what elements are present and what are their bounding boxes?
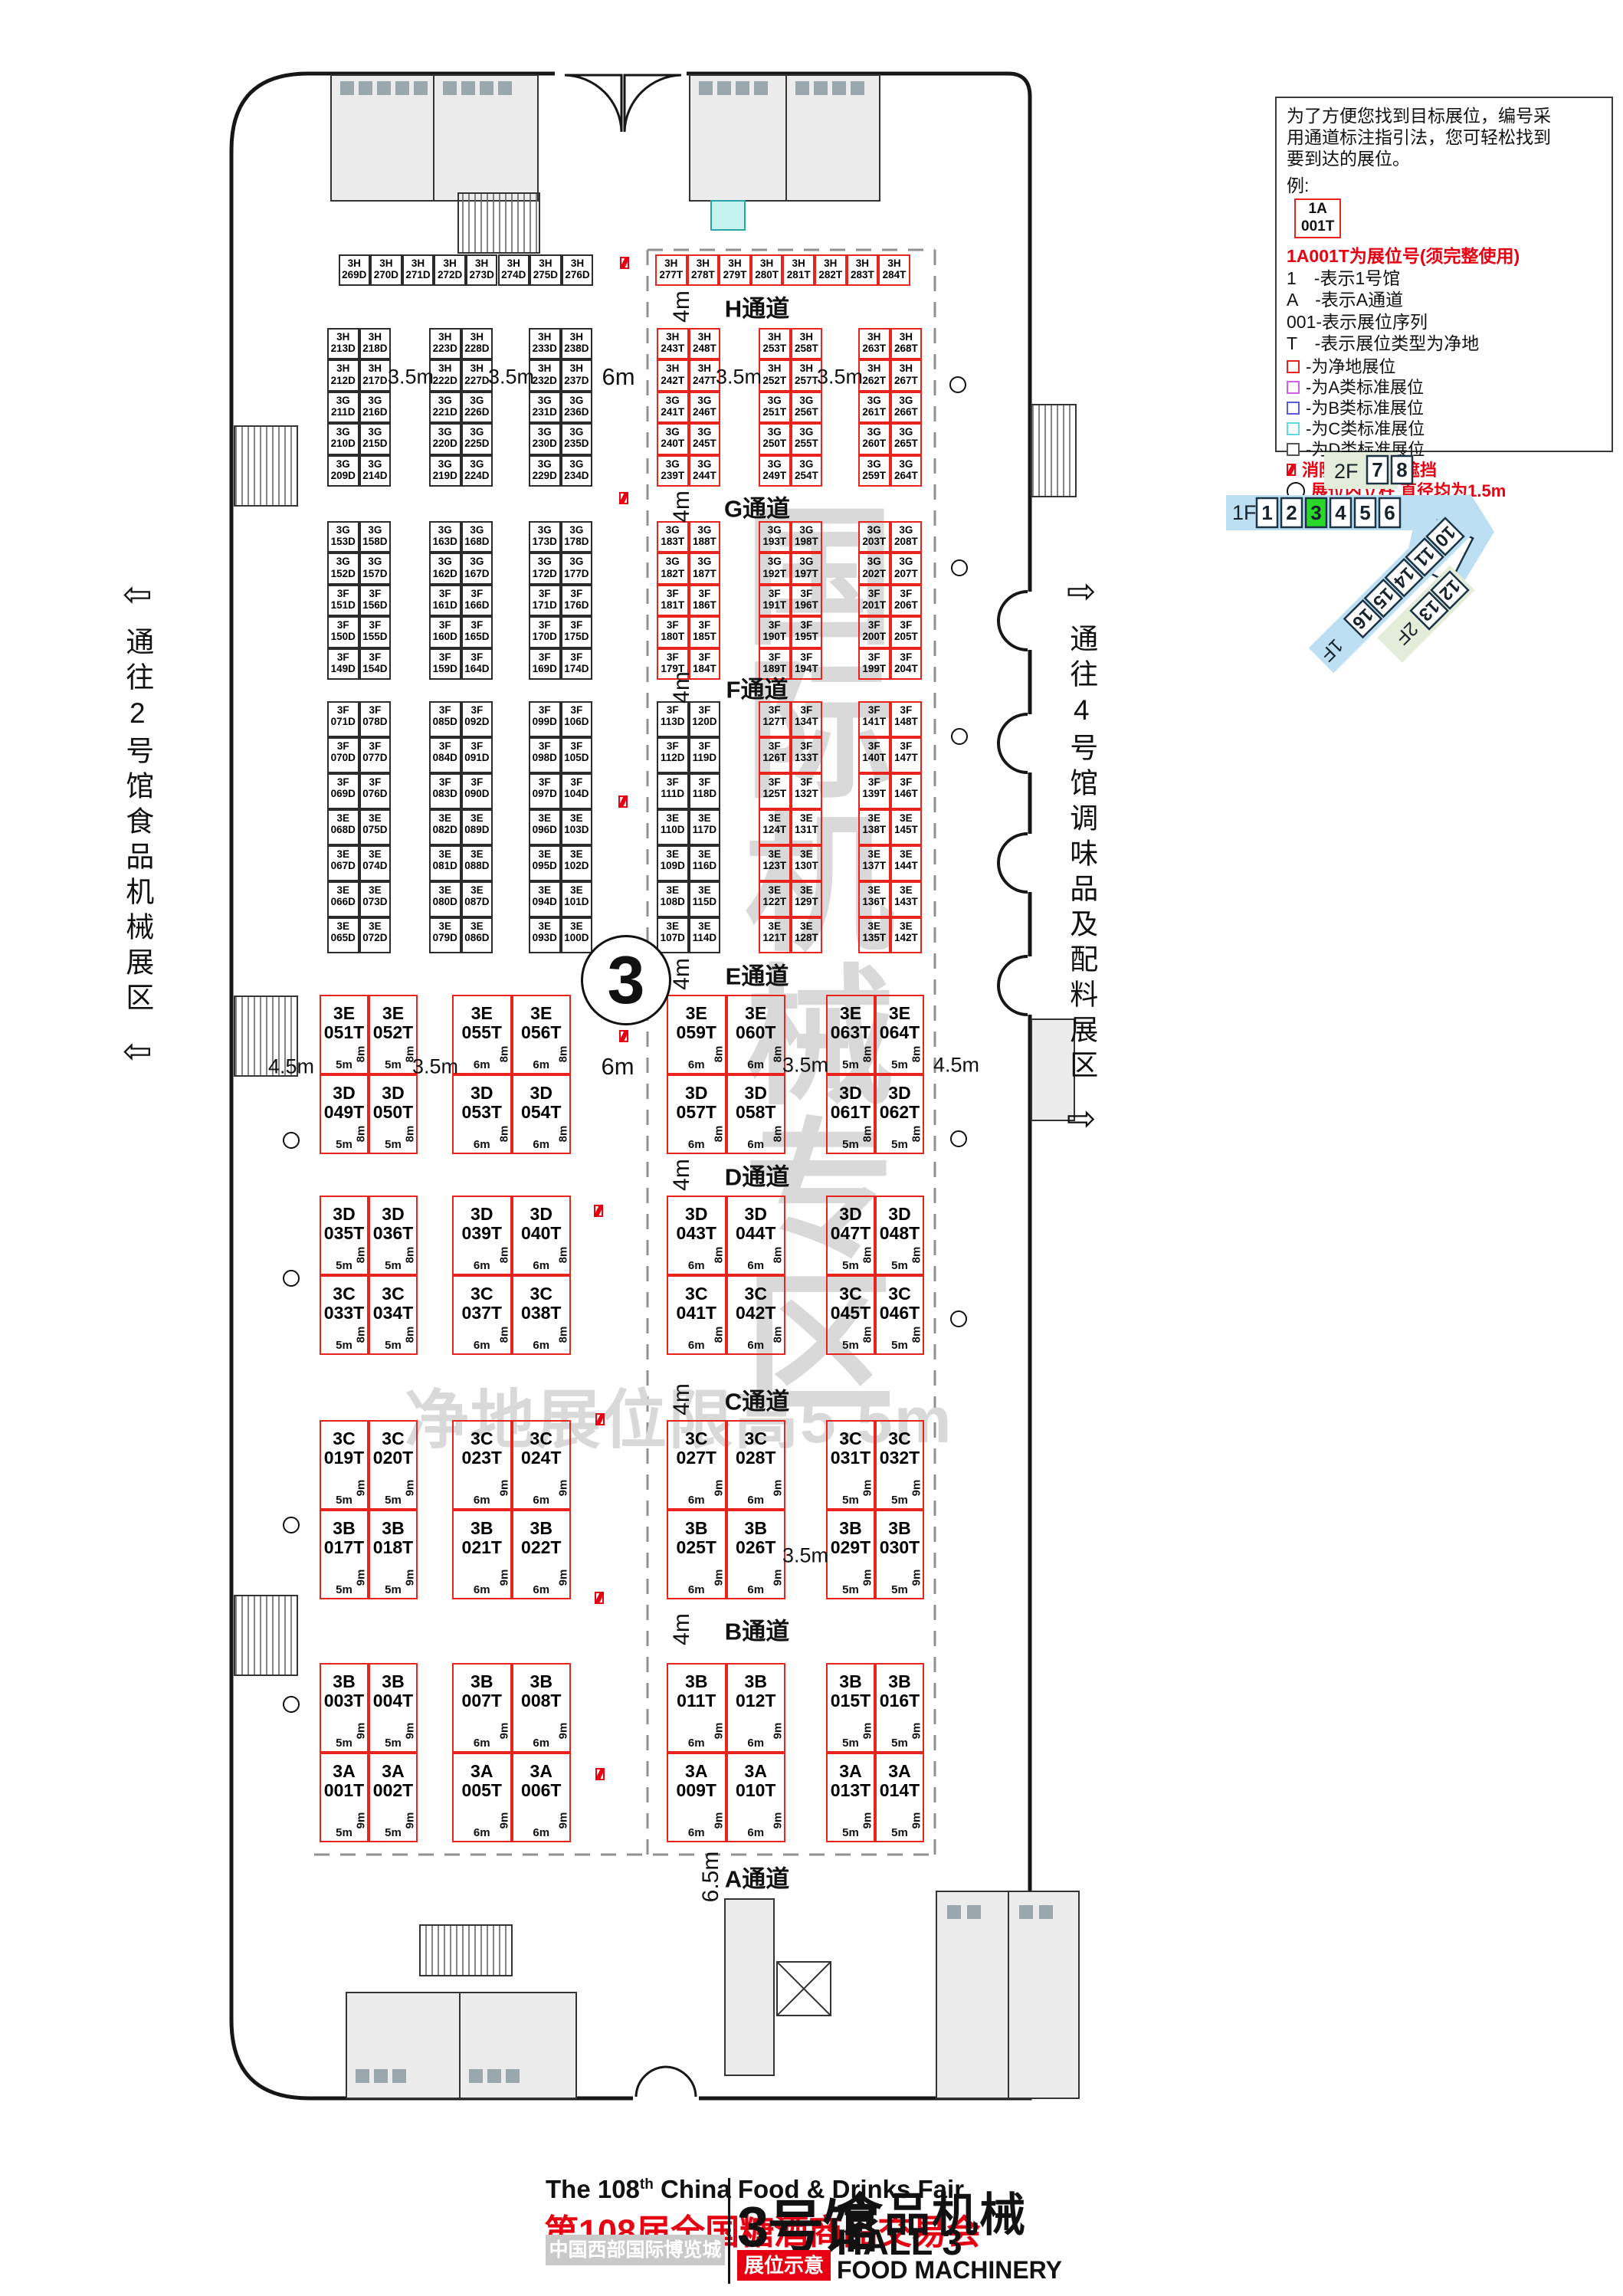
booth-3E088D[interactable]: 3E088D xyxy=(461,845,493,881)
booth-3B008T[interactable]: 3B008T6m9m xyxy=(512,1663,572,1753)
booth-3G203T[interactable]: 3G203T xyxy=(858,521,890,553)
booth-3E144T[interactable]: 3E144T xyxy=(890,845,923,881)
booth-3G250T[interactable]: 3G250T xyxy=(759,423,791,454)
booth-3G152D[interactable]: 3G152D xyxy=(327,553,359,584)
booth-3E131T[interactable]: 3E131T xyxy=(791,809,823,845)
booth-3D049T[interactable]: 3D049T5m8m xyxy=(320,1074,369,1154)
booth-3F160D[interactable]: 3F160D xyxy=(429,616,461,648)
booth-3G225D[interactable]: 3G225D xyxy=(461,423,493,454)
booth-3F141T[interactable]: 3F141T xyxy=(858,701,890,737)
booth-3H279T[interactable]: 3H279T xyxy=(719,254,751,286)
booth-3B007T[interactable]: 3B007T6m9m xyxy=(452,1663,512,1753)
booth-3F199T[interactable]: 3F199T xyxy=(858,648,890,680)
booth-3E080D[interactable]: 3E080D xyxy=(429,881,461,917)
booth-3A010T[interactable]: 3A010T6m9m xyxy=(726,1753,786,1842)
booth-3E056T[interactable]: 3E056T6m8m xyxy=(512,995,572,1074)
booth-3H277T[interactable]: 3H277T xyxy=(655,254,687,286)
booth-3F159D[interactable]: 3F159D xyxy=(429,648,461,680)
booth-3F140T[interactable]: 3F140T xyxy=(858,737,890,773)
booth-3F195T[interactable]: 3F195T xyxy=(791,616,823,648)
booth-3B026T[interactable]: 3B026T6m9m xyxy=(726,1510,786,1599)
booth-3B012T[interactable]: 3B012T6m9m xyxy=(726,1663,786,1753)
booth-3F194T[interactable]: 3F194T xyxy=(791,648,823,680)
booth-3G229D[interactable]: 3G229D xyxy=(529,455,561,487)
booth-3H271D[interactable]: 3H271D xyxy=(402,254,434,286)
booth-3C032T[interactable]: 3C032T5m9m xyxy=(875,1420,924,1510)
booth-3E138T[interactable]: 3E138T xyxy=(858,809,890,845)
booth-3F092D[interactable]: 3F092D xyxy=(461,701,493,737)
booth-3H248T[interactable]: 3H248T xyxy=(689,328,721,359)
booth-3B030T[interactable]: 3B030T5m9m xyxy=(875,1510,924,1599)
booth-3E137T[interactable]: 3E137T xyxy=(858,845,890,881)
booth-3F175D[interactable]: 3F175D xyxy=(561,616,593,648)
booth-3F150D[interactable]: 3F150D xyxy=(327,616,359,648)
booth-3E122T[interactable]: 3E122T xyxy=(759,881,791,917)
booth-3H273D[interactable]: 3H273D xyxy=(466,254,498,286)
booth-3C038T[interactable]: 3C038T6m8m xyxy=(512,1275,572,1355)
booth-3G234D[interactable]: 3G234D xyxy=(561,455,593,487)
booth-3G182T[interactable]: 3G182T xyxy=(657,553,689,584)
fire-well-icon xyxy=(594,1205,603,1217)
dimension-label: 4.5m xyxy=(268,1055,314,1079)
booth-3F105D[interactable]: 3F105D xyxy=(561,737,593,773)
booth-3H243T[interactable]: 3H243T xyxy=(657,328,689,359)
booth-3F191T[interactable]: 3F191T xyxy=(759,585,791,616)
booth-3E074D[interactable]: 3E074D xyxy=(359,845,392,881)
booth-3F176D[interactable]: 3F176D xyxy=(561,585,593,616)
booth-3E096D[interactable]: 3E096D xyxy=(529,809,561,845)
booth-3C041T[interactable]: 3C041T6m8m xyxy=(667,1275,726,1355)
booth-3F156D[interactable]: 3F156D xyxy=(359,585,392,616)
booth-3H222D[interactable]: 3H222D xyxy=(429,359,461,391)
booth-3C037T[interactable]: 3C037T6m8m xyxy=(452,1275,512,1355)
booth-3H282T[interactable]: 3H282T xyxy=(815,254,847,286)
booth-3E129T[interactable]: 3E129T xyxy=(791,881,823,917)
venue-name: 中国西部国际博览城 xyxy=(546,2235,725,2265)
booth-3E064T[interactable]: 3E064T5m8m xyxy=(875,995,924,1074)
booth-3A006T[interactable]: 3A006T6m9m xyxy=(512,1753,572,1842)
booth-3D054T[interactable]: 3D054T6m8m xyxy=(512,1074,572,1154)
booth-3F190T[interactable]: 3F190T xyxy=(759,616,791,648)
booth-3H262T[interactable]: 3H262T xyxy=(858,359,890,391)
booth-3G153D[interactable]: 3G153D xyxy=(327,521,359,553)
booth-3G251T[interactable]: 3G251T xyxy=(759,392,791,423)
booth-3F118D[interactable]: 3F118D xyxy=(689,773,721,809)
minimap-hall-5[interactable]: 5 xyxy=(1359,501,1370,524)
booth-3B022T[interactable]: 3B022T6m9m xyxy=(512,1510,572,1599)
fire-well-icon xyxy=(620,257,629,269)
booth-3F164D[interactable]: 3F164D xyxy=(461,648,493,680)
booth-3B011T[interactable]: 3B011T6m9m xyxy=(667,1663,726,1753)
booth-3G255T[interactable]: 3G255T xyxy=(791,423,823,454)
booth-3G207T[interactable]: 3G207T xyxy=(890,553,923,584)
pillar-icon xyxy=(950,1130,967,1147)
booth-3A002T[interactable]: 3A002T5m9m xyxy=(369,1753,418,1842)
floor-plan-canvas: 国际机械专区 净地展位限高5.5m 3 ⇦ 通往2号馆食品机械展区 ⇦ ⇨ 通往… xyxy=(0,0,1623,2296)
booth-3G193T[interactable]: 3G193T xyxy=(759,521,791,553)
booth-3H253T[interactable]: 3H253T xyxy=(759,328,791,359)
booth-3C027T[interactable]: 3C027T6m9m xyxy=(667,1420,726,1510)
booth-3G260T[interactable]: 3G260T xyxy=(858,423,890,454)
booth-3C046T[interactable]: 3C046T5m8m xyxy=(875,1275,924,1355)
booth-3G178D[interactable]: 3G178D xyxy=(561,521,593,553)
booth-3F126T[interactable]: 3F126T xyxy=(759,737,791,773)
booth-3E094D[interactable]: 3E094D xyxy=(529,881,561,917)
booth-3E059T[interactable]: 3E059T6m8m xyxy=(667,995,726,1074)
booth-3E095D[interactable]: 3E095D xyxy=(529,845,561,881)
booth-3G209D[interactable]: 3G209D xyxy=(327,455,359,487)
booth-3B015T[interactable]: 3B015T5m9m xyxy=(826,1663,875,1753)
booth-3G162D[interactable]: 3G162D xyxy=(429,553,461,584)
booth-3G215D[interactable]: 3G215D xyxy=(359,423,392,454)
booth-3F200T[interactable]: 3F200T xyxy=(858,616,890,648)
booth-3E117D[interactable]: 3E117D xyxy=(689,809,721,845)
booth-3G211D[interactable]: 3G211D xyxy=(327,392,359,423)
booth-3G157D[interactable]: 3G157D xyxy=(359,553,392,584)
booth-3E128T[interactable]: 3E128T xyxy=(791,917,823,953)
booth-3A013T[interactable]: 3A013T5m9m xyxy=(826,1753,875,1842)
booth-3G158D[interactable]: 3G158D xyxy=(359,521,392,553)
booth-3G249T[interactable]: 3G249T xyxy=(759,455,791,487)
booth-3C034T[interactable]: 3C034T5m8m xyxy=(369,1275,418,1355)
booth-3E121T[interactable]: 3E121T xyxy=(759,917,791,953)
booth-3D036T[interactable]: 3D036T5m8m xyxy=(369,1196,418,1275)
booth-3C031T[interactable]: 3C031T5m9m xyxy=(826,1420,875,1510)
minimap-hall-6[interactable]: 6 xyxy=(1384,501,1395,524)
booth-3G187T[interactable]: 3G187T xyxy=(689,553,721,584)
booth-3E066D[interactable]: 3E066D xyxy=(327,881,359,917)
booth-3F204T[interactable]: 3F204T xyxy=(890,648,923,680)
left-arrow-icon: ⇦ xyxy=(123,576,152,612)
booth-3D058T[interactable]: 3D058T6m8m xyxy=(726,1074,786,1154)
booth-3B016T[interactable]: 3B016T5m9m xyxy=(875,1663,924,1753)
booth-3E072D[interactable]: 3E072D xyxy=(359,917,392,953)
booth-3E079D[interactable]: 3E079D xyxy=(429,917,461,953)
booth-3H238D[interactable]: 3H238D xyxy=(561,328,593,359)
booth-3D035T[interactable]: 3D035T5m8m xyxy=(320,1196,369,1275)
booth-3H283T[interactable]: 3H283T xyxy=(847,254,879,286)
pillar-icon xyxy=(951,728,968,745)
booth-3F171D[interactable]: 3F171D xyxy=(529,585,561,616)
booth-3G244T[interactable]: 3G244T xyxy=(689,455,721,487)
booth-3B029T[interactable]: 3B029T5m9m xyxy=(826,1510,875,1599)
booth-3F139T[interactable]: 3F139T xyxy=(858,773,890,809)
booth-3D040T[interactable]: 3D040T6m8m xyxy=(512,1196,572,1275)
booth-3E116D[interactable]: 3E116D xyxy=(689,845,721,881)
booth-3G224D[interactable]: 3G224D xyxy=(461,455,493,487)
booth-3H213D[interactable]: 3H213D xyxy=(327,328,359,359)
booth-3F147T[interactable]: 3F147T xyxy=(890,737,923,773)
booth-3H276D[interactable]: 3H276D xyxy=(562,254,594,286)
booth-3B004T[interactable]: 3B004T5m9m xyxy=(369,1663,418,1753)
booth-3G254T[interactable]: 3G254T xyxy=(791,455,823,487)
booth-3B025T[interactable]: 3B025T6m9m xyxy=(667,1510,726,1599)
venue-minimap: 2F781F123456910111415161F12132F xyxy=(1225,429,1623,755)
booth-3F104D[interactable]: 3F104D xyxy=(561,773,593,809)
booth-3E087D[interactable]: 3E087D xyxy=(461,881,493,917)
booth-3H269D[interactable]: 3H269D xyxy=(339,254,371,286)
booth-3F148T[interactable]: 3F148T xyxy=(890,701,923,737)
booth-3F132T[interactable]: 3F132T xyxy=(791,773,823,809)
booth-3E063T[interactable]: 3E063T5m8m xyxy=(826,995,875,1074)
booth-3E086D[interactable]: 3E086D xyxy=(461,917,493,953)
booth-3C023T[interactable]: 3C023T6m9m xyxy=(452,1420,512,1510)
fire-well-icon xyxy=(595,1413,605,1425)
booth-3E101D[interactable]: 3E101D xyxy=(561,881,593,917)
booth-3G173D[interactable]: 3G173D xyxy=(529,521,561,553)
booth-3G256T[interactable]: 3G256T xyxy=(791,392,823,423)
booth-3F155D[interactable]: 3F155D xyxy=(359,616,392,648)
booth-3H242T[interactable]: 3H242T xyxy=(657,359,689,391)
booth-3F112D[interactable]: 3F112D xyxy=(657,737,689,773)
pillar-icon xyxy=(283,1696,300,1713)
booth-3F069D[interactable]: 3F069D xyxy=(327,773,359,809)
booth-3E060T[interactable]: 3E060T6m8m xyxy=(726,995,786,1074)
booth-3G197T[interactable]: 3G197T xyxy=(791,553,823,584)
booth-3D062T[interactable]: 3D062T5m8m xyxy=(875,1074,924,1154)
booth-3D039T[interactable]: 3D039T6m8m xyxy=(452,1196,512,1275)
booth-3F125T[interactable]: 3F125T xyxy=(759,773,791,809)
booth-3F106D[interactable]: 3F106D xyxy=(561,701,593,737)
booth-3G210D[interactable]: 3G210D xyxy=(327,423,359,454)
booth-3E068D[interactable]: 3E068D xyxy=(327,809,359,845)
booth-3E067D[interactable]: 3E067D xyxy=(327,845,359,881)
booth-3B018T[interactable]: 3B018T5m9m xyxy=(369,1510,418,1599)
minimap-hall-1[interactable]: 1 xyxy=(1261,501,1272,524)
booth-3G239T[interactable]: 3G239T xyxy=(657,455,689,487)
minimap-hall-8[interactable]: 8 xyxy=(1396,458,1407,481)
booth-3E055T[interactable]: 3E055T6m8m xyxy=(452,995,512,1074)
booth-3F078D[interactable]: 3F078D xyxy=(359,701,392,737)
booth-3H217D[interactable]: 3H217D xyxy=(359,359,392,391)
booth-3E135T[interactable]: 3E135T xyxy=(858,917,890,953)
booth-3E124T[interactable]: 3E124T xyxy=(759,809,791,845)
booth-3G214D[interactable]: 3G214D xyxy=(359,455,392,487)
booth-3G208T[interactable]: 3G208T xyxy=(890,521,923,553)
booth-3F076D[interactable]: 3F076D xyxy=(359,773,392,809)
booth-3F161D[interactable]: 3F161D xyxy=(429,585,461,616)
booth-3F174D[interactable]: 3F174D xyxy=(561,648,593,680)
booth-3G241T[interactable]: 3G241T xyxy=(657,392,689,423)
booth-3H258T[interactable]: 3H258T xyxy=(791,328,823,359)
booth-3D044T[interactable]: 3D044T6m8m xyxy=(726,1196,786,1275)
booth-3F169D[interactable]: 3F169D xyxy=(529,648,561,680)
booth-3F119D[interactable]: 3F119D xyxy=(689,737,721,773)
booth-3G167D[interactable]: 3G167D xyxy=(461,553,493,584)
booth-3G264T[interactable]: 3G264T xyxy=(890,455,923,487)
booth-3G231D[interactable]: 3G231D xyxy=(529,392,561,423)
booth-3C045T[interactable]: 3C045T5m8m xyxy=(826,1275,875,1355)
pillar-icon xyxy=(949,376,966,393)
booth-3A001T[interactable]: 3A001T5m9m xyxy=(320,1753,369,1842)
dimension-label: 3.5m xyxy=(782,1544,828,1568)
booth-3E051T[interactable]: 3E051T5m8m xyxy=(320,995,369,1074)
booth-3C020T[interactable]: 3C020T5m9m xyxy=(369,1420,418,1510)
booth-3G230D[interactable]: 3G230D xyxy=(529,423,561,454)
booth-3E082D[interactable]: 3E082D xyxy=(429,809,461,845)
booth-3F099D[interactable]: 3F099D xyxy=(529,701,561,737)
booth-3E115D[interactable]: 3E115D xyxy=(689,881,721,917)
booth-3E100D[interactable]: 3E100D xyxy=(561,917,593,953)
booth-3G245T[interactable]: 3G245T xyxy=(689,423,721,454)
booth-3G172D[interactable]: 3G172D xyxy=(529,553,561,584)
booth-3D057T[interactable]: 3D057T6m8m xyxy=(667,1074,726,1154)
booth-3E143T[interactable]: 3E143T xyxy=(890,881,923,917)
booth-3F201T[interactable]: 3F201T xyxy=(858,585,890,616)
booth-3H272D[interactable]: 3H272D xyxy=(434,254,466,286)
minimap-hall-7[interactable]: 7 xyxy=(1372,458,1382,481)
booth-3H267T[interactable]: 3H267T xyxy=(890,359,923,391)
booth-3H233D[interactable]: 3H233D xyxy=(529,328,561,359)
booth-3F127T[interactable]: 3F127T xyxy=(759,701,791,737)
booth-3A014T[interactable]: 3A014T5m9m xyxy=(875,1753,924,1842)
booth-3F120D[interactable]: 3F120D xyxy=(689,701,721,737)
booth-3F149D[interactable]: 3F149D xyxy=(327,648,359,680)
booth-3E109D[interactable]: 3E109D xyxy=(657,845,689,881)
booth-3F185T[interactable]: 3F185T xyxy=(689,616,721,648)
booth-3F097D[interactable]: 3F097D xyxy=(529,773,561,809)
booth-3G198T[interactable]: 3G198T xyxy=(791,521,823,553)
booth-3E110D[interactable]: 3E110D xyxy=(657,809,689,845)
booth-3A005T[interactable]: 3A005T6m9m xyxy=(452,1753,512,1842)
booth-3E130T[interactable]: 3E130T xyxy=(791,845,823,881)
booth-3F146T[interactable]: 3F146T xyxy=(890,773,923,809)
booth-3G188T[interactable]: 3G188T xyxy=(689,521,721,553)
booth-3H212D[interactable]: 3H212D xyxy=(327,359,359,391)
booth-3E081D[interactable]: 3E081D xyxy=(429,845,461,881)
dimension-label: 3.5m xyxy=(488,366,534,389)
booth-3G265T[interactable]: 3G265T xyxy=(890,423,923,454)
booth-3G235D[interactable]: 3G235D xyxy=(561,423,593,454)
booth-3H263T[interactable]: 3H263T xyxy=(858,328,890,359)
booth-3F165D[interactable]: 3F165D xyxy=(461,616,493,648)
booth-3F180T[interactable]: 3F180T xyxy=(657,616,689,648)
booth-3E103D[interactable]: 3E103D xyxy=(561,809,593,845)
booth-3G226D[interactable]: 3G226D xyxy=(461,392,493,423)
booth-3D050T[interactable]: 3D050T5m8m xyxy=(369,1074,418,1154)
minimap-hall-4[interactable]: 4 xyxy=(1335,501,1346,524)
booth-3A009T[interactable]: 3A009T6m9m xyxy=(667,1753,726,1842)
booth-3G216D[interactable]: 3G216D xyxy=(359,392,392,423)
booth-3F083D[interactable]: 3F083D xyxy=(429,773,461,809)
booth-3H280T[interactable]: 3H280T xyxy=(751,254,783,286)
booth-3G240T[interactable]: 3G240T xyxy=(657,423,689,454)
booth-3G261T[interactable]: 3G261T xyxy=(858,392,890,423)
booth-3H281T[interactable]: 3H281T xyxy=(782,254,815,286)
booth-3F186T[interactable]: 3F186T xyxy=(689,585,721,616)
minimap-hall-2[interactable]: 2 xyxy=(1286,501,1297,524)
booth-3G259T[interactable]: 3G259T xyxy=(858,455,890,487)
booth-3D053T[interactable]: 3D053T6m8m xyxy=(452,1074,512,1154)
toilet-rooms-top-right xyxy=(690,75,880,201)
booth-3F134T[interactable]: 3F134T xyxy=(791,701,823,737)
booth-3F111D[interactable]: 3F111D xyxy=(657,773,689,809)
booth-3G246T[interactable]: 3G246T xyxy=(689,392,721,423)
booth-3F071D[interactable]: 3F071D xyxy=(327,701,359,737)
booth-3D048T[interactable]: 3D048T5m8m xyxy=(875,1196,924,1275)
booth-3F084D[interactable]: 3F084D xyxy=(429,737,461,773)
booth-3H228D[interactable]: 3H228D xyxy=(461,328,493,359)
booth-3G163D[interactable]: 3G163D xyxy=(429,521,461,553)
booth-3H223D[interactable]: 3H223D xyxy=(429,328,461,359)
booth-3D043T[interactable]: 3D043T6m8m xyxy=(667,1196,726,1275)
booth-3F205T[interactable]: 3F205T xyxy=(890,616,923,648)
booth-3E114D[interactable]: 3E114D xyxy=(689,917,721,953)
booth-3E075D[interactable]: 3E075D xyxy=(359,809,392,845)
booth-3E102D[interactable]: 3E102D xyxy=(561,845,593,881)
booth-3E073D[interactable]: 3E073D xyxy=(359,881,392,917)
booth-3G220D[interactable]: 3G220D xyxy=(429,423,461,454)
booth-3D047T[interactable]: 3D047T5m8m xyxy=(826,1196,875,1275)
booth-3H270D[interactable]: 3H270D xyxy=(370,254,402,286)
booth-3E065D[interactable]: 3E065D xyxy=(327,917,359,953)
booth-3E089D[interactable]: 3E089D xyxy=(461,809,493,845)
booth-3F181T[interactable]: 3F181T xyxy=(657,585,689,616)
booth-3H252T[interactable]: 3H252T xyxy=(759,359,791,391)
booth-3E123T[interactable]: 3E123T xyxy=(759,845,791,881)
booth-3F206T[interactable]: 3F206T xyxy=(890,585,923,616)
booth-3B003T[interactable]: 3B003T5m9m xyxy=(320,1663,369,1753)
booth-3G219D[interactable]: 3G219D xyxy=(429,455,461,487)
booth-3F154D[interactable]: 3F154D xyxy=(359,648,392,680)
booth-3H278T[interactable]: 3H278T xyxy=(687,254,720,286)
booth-3F077D[interactable]: 3F077D xyxy=(359,737,392,773)
booth-3G192T[interactable]: 3G192T xyxy=(759,553,791,584)
booth-3C033T[interactable]: 3C033T5m8m xyxy=(320,1275,369,1355)
booth-3D061T[interactable]: 3D061T5m8m xyxy=(826,1074,875,1154)
booth-3C028T[interactable]: 3C028T6m9m xyxy=(726,1420,786,1510)
booth-3E136T[interactable]: 3E136T xyxy=(858,881,890,917)
booth-3H274D[interactable]: 3H274D xyxy=(498,254,530,286)
booth-3G202T[interactable]: 3G202T xyxy=(858,553,890,584)
booth-3B017T[interactable]: 3B017T5m9m xyxy=(320,1510,369,1599)
booth-3E108D[interactable]: 3E108D xyxy=(657,881,689,917)
booth-3F196T[interactable]: 3F196T xyxy=(791,585,823,616)
booth-3C042T[interactable]: 3C042T6m8m xyxy=(726,1275,786,1355)
booth-3C024T[interactable]: 3C024T6m9m xyxy=(512,1420,572,1510)
booth-3G183T[interactable]: 3G183T xyxy=(657,521,689,553)
minimap-hall-3[interactable]: 3 xyxy=(1310,501,1321,524)
booth-3F166D[interactable]: 3F166D xyxy=(461,585,493,616)
booth-3F170D[interactable]: 3F170D xyxy=(529,616,561,648)
booth-3H268T[interactable]: 3H268T xyxy=(890,328,923,359)
booth-3E142T[interactable]: 3E142T xyxy=(890,917,923,953)
booth-3H218D[interactable]: 3H218D xyxy=(359,328,392,359)
booth-3H237D[interactable]: 3H237D xyxy=(561,359,593,391)
booth-3G177D[interactable]: 3G177D xyxy=(561,553,593,584)
booth-3F151D[interactable]: 3F151D xyxy=(327,585,359,616)
booth-3H275D[interactable]: 3H275D xyxy=(530,254,562,286)
booth-3F091D[interactable]: 3F091D xyxy=(461,737,493,773)
booth-3E107D[interactable]: 3E107D xyxy=(657,917,689,953)
booth-3G168D[interactable]: 3G168D xyxy=(461,521,493,553)
booth-3F090D[interactable]: 3F090D xyxy=(461,773,493,809)
booth-3E093D[interactable]: 3E093D xyxy=(529,917,561,953)
booth-3E145T[interactable]: 3E145T xyxy=(890,809,923,845)
booth-3G221D[interactable]: 3G221D xyxy=(429,392,461,423)
booth-3F085D[interactable]: 3F085D xyxy=(429,701,461,737)
booth-3G236D[interactable]: 3G236D xyxy=(561,392,593,423)
booth-3F113D[interactable]: 3F113D xyxy=(657,701,689,737)
booth-3B021T[interactable]: 3B021T6m9m xyxy=(452,1510,512,1599)
booth-3H284T[interactable]: 3H284T xyxy=(878,254,910,286)
booth-3G266T[interactable]: 3G266T xyxy=(890,392,923,423)
booth-3F070D[interactable]: 3F070D xyxy=(327,737,359,773)
booth-3C019T[interactable]: 3C019T5m9m xyxy=(320,1420,369,1510)
booth-3F133T[interactable]: 3F133T xyxy=(791,737,823,773)
booth-3E052T[interactable]: 3E052T5m8m xyxy=(369,995,418,1074)
booth-3F098D[interactable]: 3F098D xyxy=(529,737,561,773)
